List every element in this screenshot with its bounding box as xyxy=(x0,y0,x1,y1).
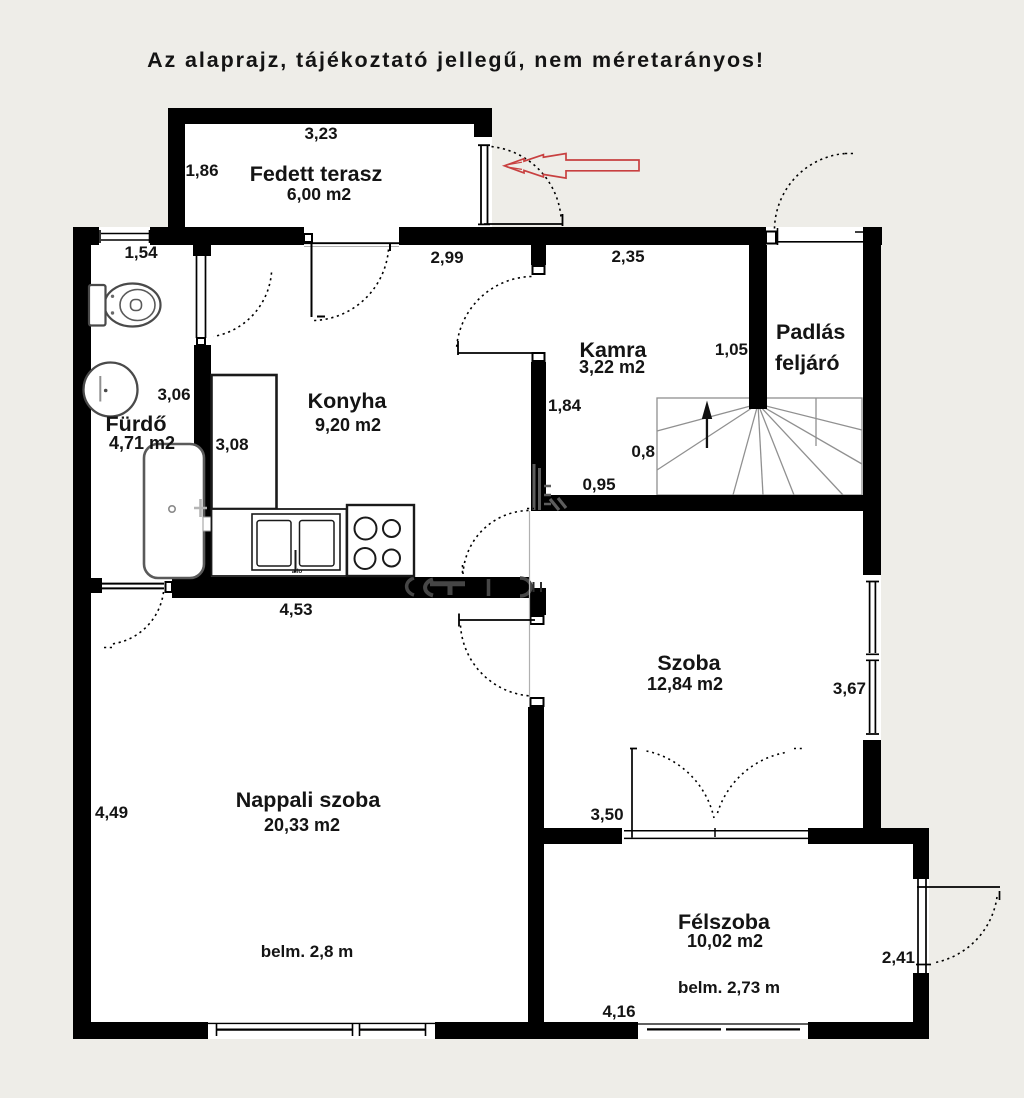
svg-text:Nappali szoba: Nappali szoba xyxy=(236,788,382,812)
svg-text:4,71 m2: 4,71 m2 xyxy=(109,433,175,453)
svg-text:1,84: 1,84 xyxy=(548,396,582,415)
svg-text:a.lo: a.lo xyxy=(292,569,303,575)
svg-text:Padlás: Padlás xyxy=(776,320,845,344)
svg-text:0,8: 0,8 xyxy=(631,442,655,461)
svg-text:3,22 m2: 3,22 m2 xyxy=(579,357,645,377)
svg-text:6,00 m2: 6,00 m2 xyxy=(287,184,351,204)
svg-text:Konyha: Konyha xyxy=(308,389,388,413)
svg-text:10,02 m2: 10,02 m2 xyxy=(687,931,763,951)
svg-text:4,53: 4,53 xyxy=(279,600,312,619)
svg-text:3,67: 3,67 xyxy=(833,679,866,698)
svg-text:3,08: 3,08 xyxy=(215,435,248,454)
svg-text:4,49: 4,49 xyxy=(95,803,128,822)
svg-text:3,23: 3,23 xyxy=(304,124,337,143)
svg-text:2,35: 2,35 xyxy=(611,247,644,266)
svg-text:0,95: 0,95 xyxy=(582,475,615,494)
svg-text:2,41: 2,41 xyxy=(882,948,915,967)
svg-text:3,06: 3,06 xyxy=(157,385,190,404)
svg-text:1,54: 1,54 xyxy=(124,243,158,262)
svg-text:1,86: 1,86 xyxy=(185,161,218,180)
svg-text:Szoba: Szoba xyxy=(657,651,721,675)
svg-text:12,84 m2: 12,84 m2 xyxy=(647,674,723,694)
svg-text:Fedett terasz: Fedett terasz xyxy=(250,162,383,186)
svg-text:9,20 m2: 9,20 m2 xyxy=(315,415,381,435)
svg-text:belm. 2,73 m: belm. 2,73 m xyxy=(678,978,780,997)
svg-text:4,16: 4,16 xyxy=(602,1002,635,1021)
svg-text:Az alaprajz, tájékoztató jelle: Az alaprajz, tájékoztató jellegű, nem mé… xyxy=(147,48,765,72)
svg-text:feljáró: feljáró xyxy=(775,351,840,375)
svg-text:20,33 m2: 20,33 m2 xyxy=(264,815,340,835)
svg-text:3,50: 3,50 xyxy=(590,805,623,824)
svg-text:1,05: 1,05 xyxy=(715,340,748,359)
svg-text:2,99: 2,99 xyxy=(430,248,463,267)
svg-text:belm. 2,8 m: belm. 2,8 m xyxy=(261,942,354,961)
